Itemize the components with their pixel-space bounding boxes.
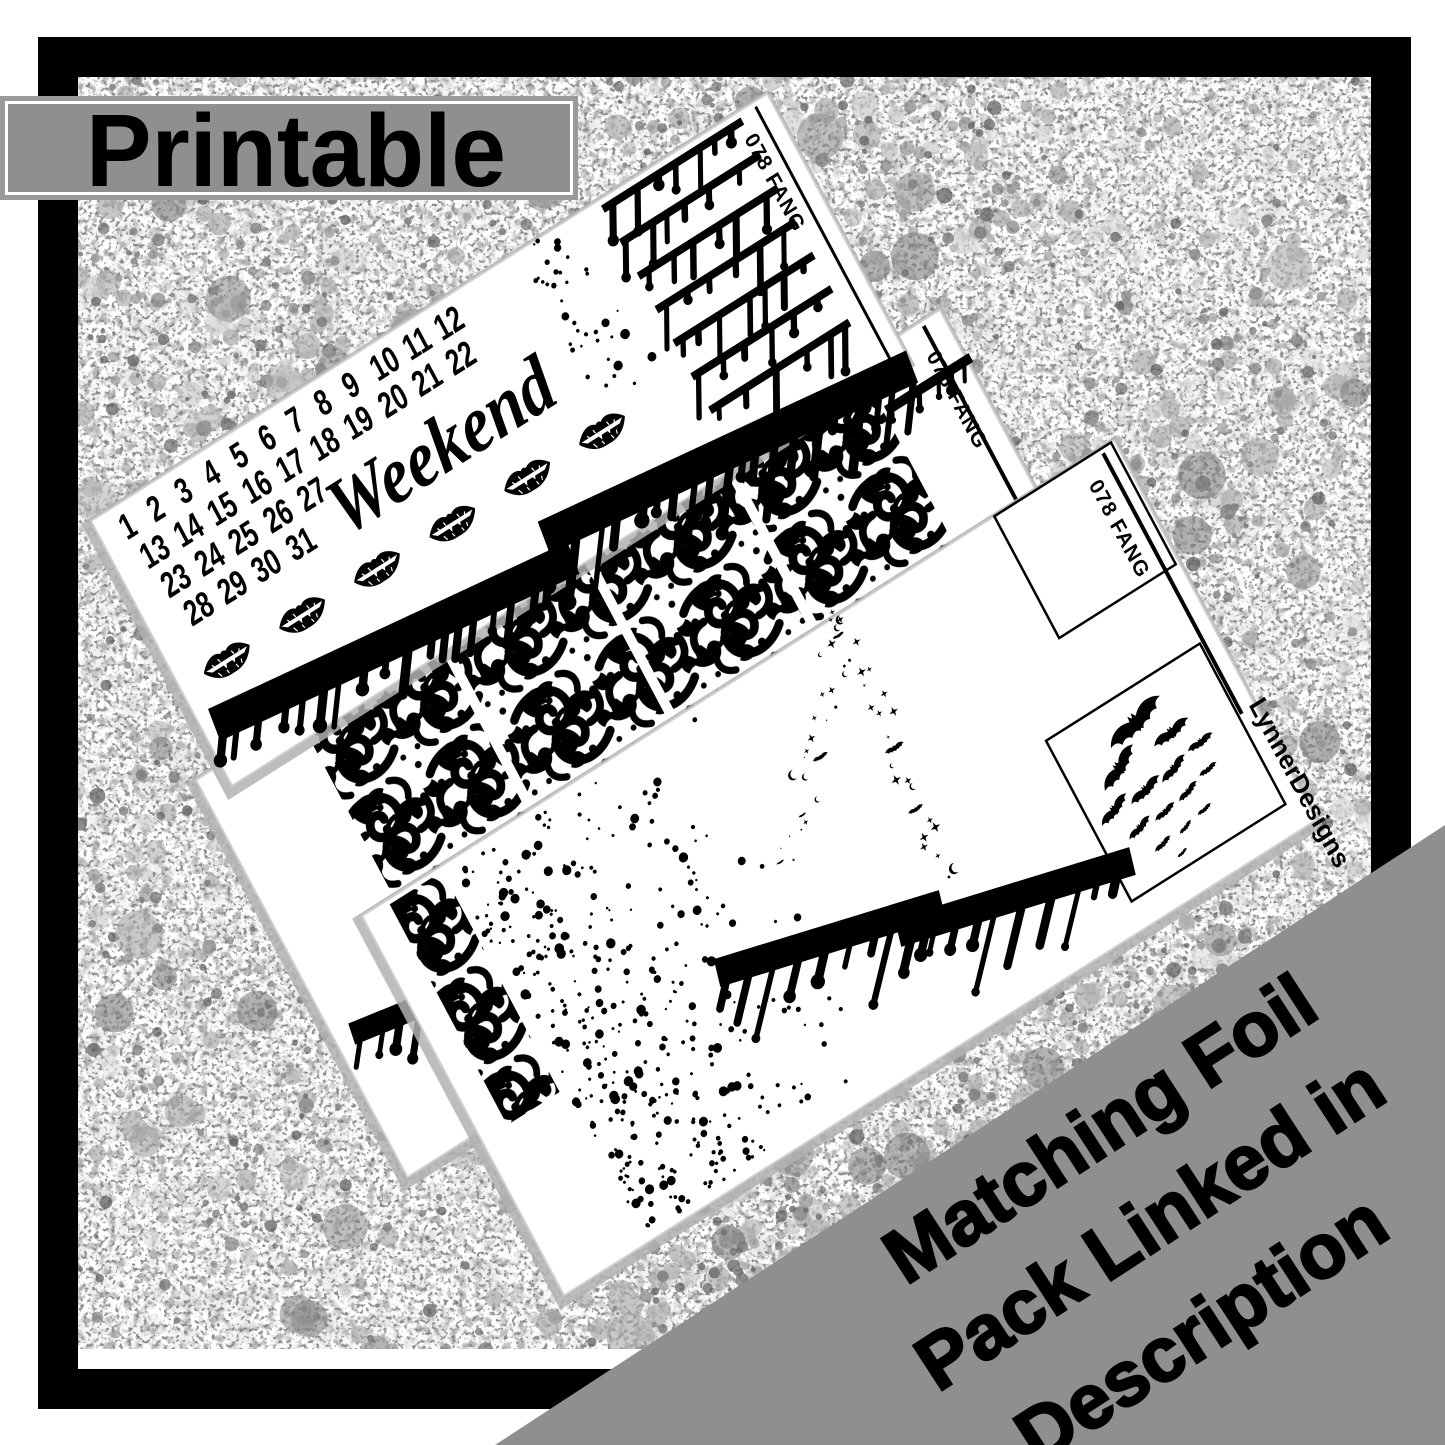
svg-text:Printable: Printable bbox=[86, 93, 506, 208]
